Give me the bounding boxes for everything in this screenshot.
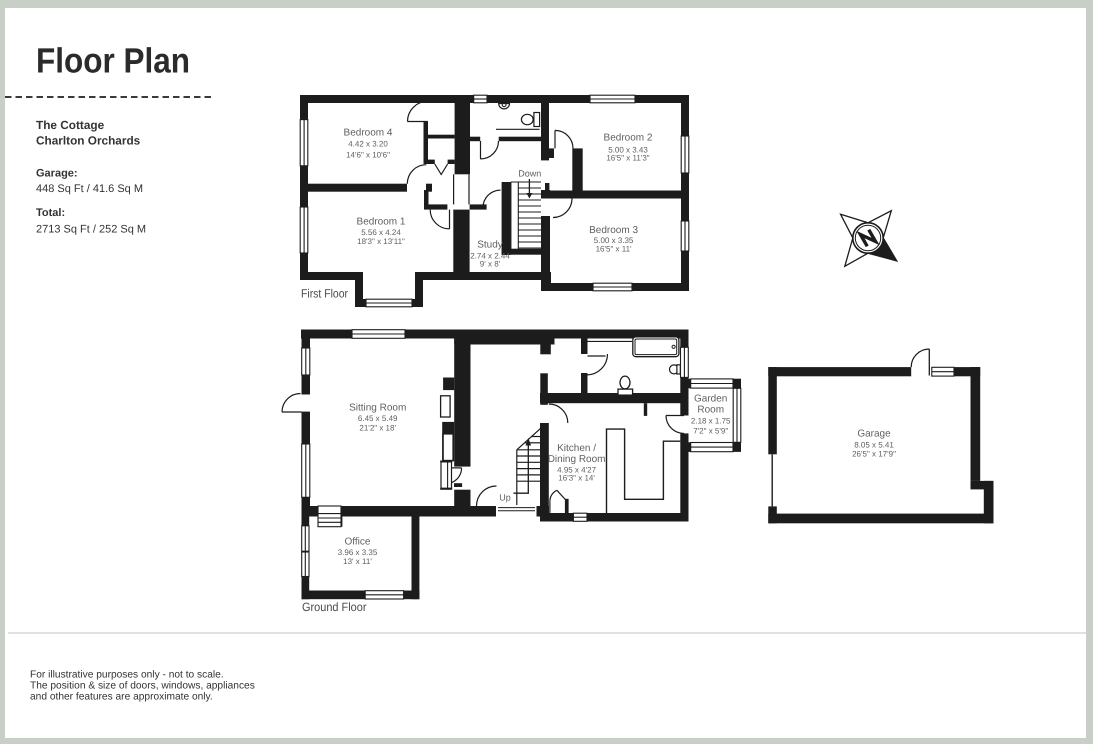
svg-text:and other features are approxi: and other features are approximate only. (30, 692, 213, 703)
svg-text:3.96 x 3.35: 3.96 x 3.35 (338, 548, 378, 557)
svg-text:Bedroom 2: Bedroom 2 (604, 133, 653, 144)
svg-text:Bedroom 3: Bedroom 3 (589, 225, 638, 236)
svg-text:4.42 x 3.20: 4.42 x 3.20 (348, 140, 388, 149)
svg-text:Room: Room (697, 405, 724, 416)
svg-text:Garden: Garden (694, 394, 727, 405)
svg-text:14'6" x 10'6": 14'6" x 10'6" (346, 151, 390, 160)
svg-text:Office: Office (345, 537, 371, 548)
svg-text:2.18 x 1.75: 2.18 x 1.75 (691, 416, 731, 425)
svg-text:18'3" x 13'11": 18'3" x 13'11" (357, 237, 405, 246)
svg-text:Bedroom 1: Bedroom 1 (357, 217, 406, 228)
svg-text:5.56 x 4.24: 5.56 x 4.24 (361, 228, 401, 237)
svg-text:Total:: Total: (36, 207, 65, 219)
svg-text:2713 Sq Ft / 252 Sq M: 2713 Sq Ft / 252 Sq M (36, 224, 146, 236)
svg-text:26'5" x 17'9": 26'5" x 17'9" (852, 450, 896, 459)
svg-text:Up: Up (499, 493, 511, 503)
svg-text:9' x 8': 9' x 8' (480, 260, 501, 269)
svg-text:7'2" x 5'9": 7'2" x 5'9" (693, 427, 728, 436)
svg-text:Garage:: Garage: (36, 168, 78, 180)
svg-text:8.05 x 5.41: 8.05 x 5.41 (854, 441, 894, 450)
svg-text:Garage: Garage (857, 429, 891, 440)
svg-text:Dining Room: Dining Room (548, 454, 606, 465)
svg-text:16'3" x 14': 16'3" x 14' (558, 474, 595, 483)
svg-text:Bedroom 4: Bedroom 4 (344, 128, 393, 139)
svg-text:Kitchen /: Kitchen / (557, 443, 596, 454)
svg-text:Study: Study (477, 240, 503, 251)
svg-text:Floor Plan: Floor Plan (36, 42, 190, 81)
svg-text:16'5" x 11'3": 16'5" x 11'3" (606, 154, 649, 163)
svg-text:The position & size of doors,: The position & size of doors, windows, a… (30, 681, 255, 692)
svg-text:First Floor: First Floor (301, 287, 348, 301)
svg-text:For illustrative purposes only: For illustrative purposes only - not to … (30, 670, 224, 681)
svg-text:Charlton Orchards: Charlton Orchards (36, 134, 141, 148)
svg-text:Sitting Room: Sitting Room (349, 403, 406, 414)
svg-text:448 Sq Ft / 41.6 Sq M: 448 Sq Ft / 41.6 Sq M (36, 183, 143, 195)
svg-text:Down: Down (518, 169, 541, 179)
svg-text:21'2" x 18': 21'2" x 18' (359, 424, 396, 433)
svg-text:13' x 11': 13' x 11' (343, 557, 372, 566)
svg-text:6.45 x 5.49: 6.45 x 5.49 (358, 414, 398, 423)
svg-text:16'5" x 11': 16'5" x 11' (596, 245, 632, 254)
svg-text:The Cottage: The Cottage (36, 118, 105, 132)
svg-text:Ground Floor: Ground Floor (302, 600, 367, 614)
